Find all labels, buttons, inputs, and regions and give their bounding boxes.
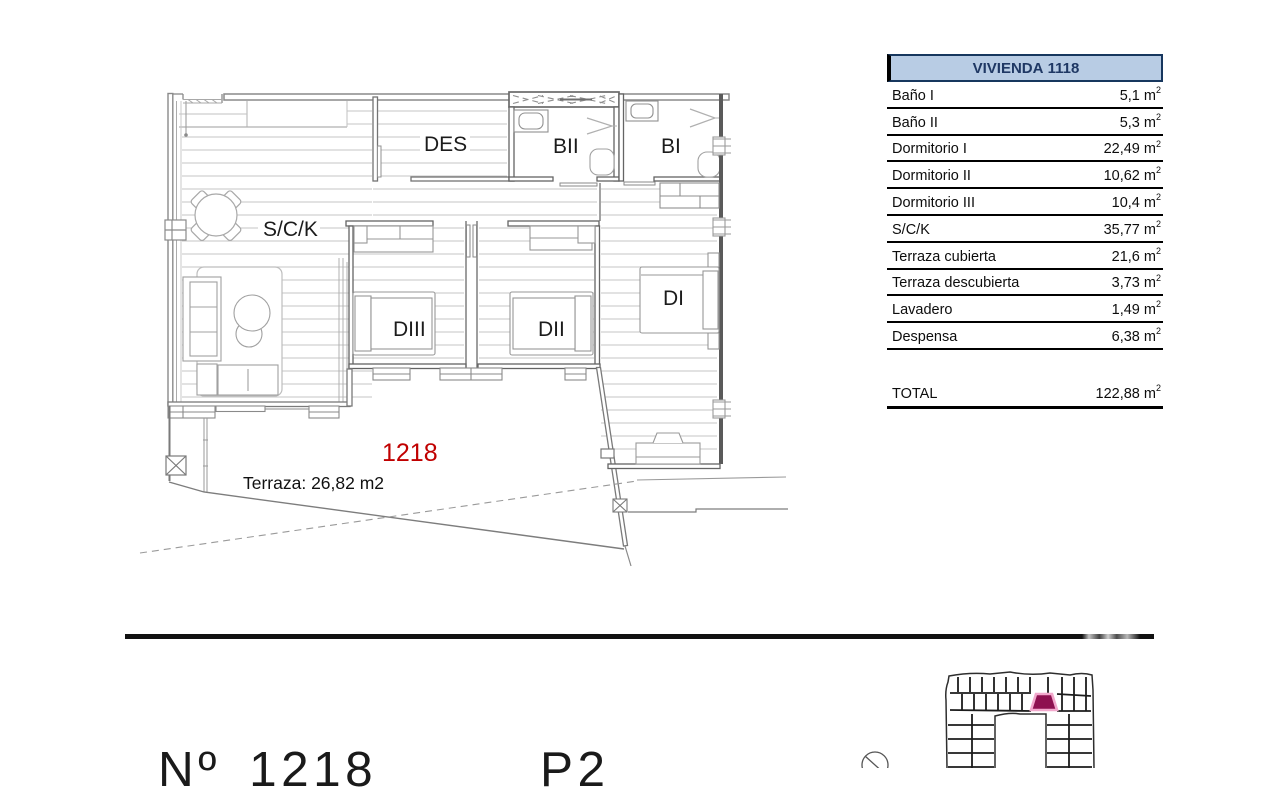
svg-text:S/C/K: S/C/K	[263, 218, 318, 241]
svg-text:DES: DES	[424, 133, 467, 156]
svg-text:1218: 1218	[382, 439, 438, 467]
svg-text:DII: DII	[538, 318, 565, 341]
svg-text:BI: BI	[661, 135, 681, 158]
svg-text:BII: BII	[553, 135, 579, 158]
svg-text:Terraza: 26,82 m2: Terraza: 26,82 m2	[243, 473, 384, 493]
svg-text:DIII: DIII	[393, 318, 426, 341]
svg-text:DI: DI	[663, 287, 684, 310]
